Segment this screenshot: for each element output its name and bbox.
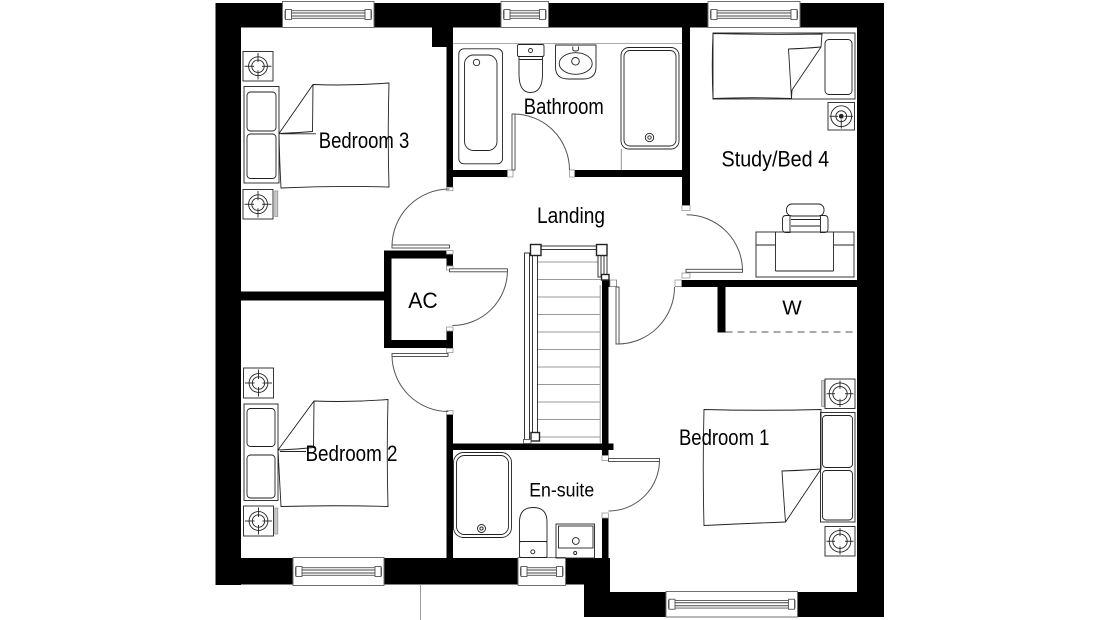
svg-text:AC: AC: [408, 288, 438, 313]
svg-text:Bedroom 2: Bedroom 2: [306, 441, 398, 466]
svg-text:W: W: [782, 297, 802, 320]
svg-text:Bathroom: Bathroom: [524, 94, 604, 119]
svg-text:Study/Bed 4: Study/Bed 4: [722, 147, 830, 172]
svg-text:Bedroom 3: Bedroom 3: [319, 128, 410, 153]
svg-text:Bedroom 1: Bedroom 1: [679, 425, 770, 450]
svg-text:En-suite: En-suite: [529, 481, 594, 502]
svg-text:Landing: Landing: [537, 203, 605, 228]
